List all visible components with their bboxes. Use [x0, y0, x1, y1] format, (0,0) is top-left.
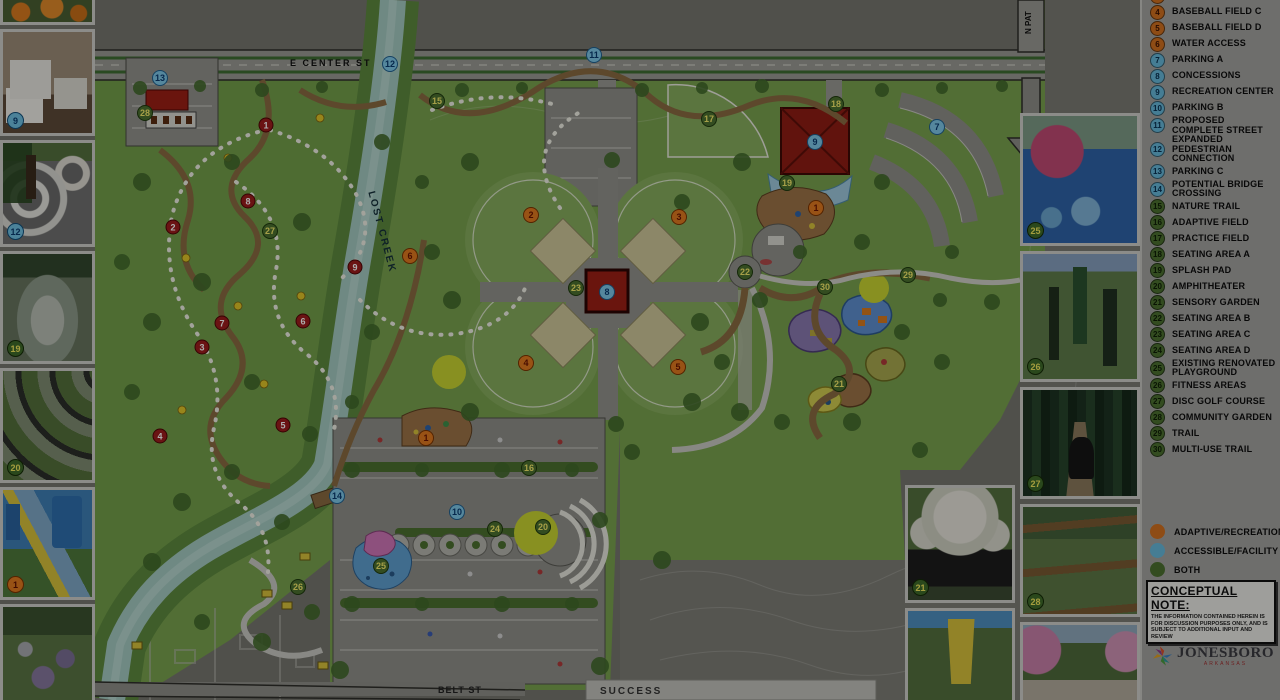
map-marker-29: 29 [900, 267, 916, 283]
legend-label-30: MULTI-USE TRAIL [1172, 445, 1252, 455]
photo-disc-golf: 27 [1020, 387, 1140, 499]
legend-item-4: 4BASEBALL FIELD C [1150, 4, 1278, 20]
conceptual-note-title: CONCEPTUAL NOTE: [1151, 584, 1271, 612]
photo-badge-28: 28 [1027, 593, 1044, 610]
photo-badge-21: 21 [912, 579, 929, 596]
map-marker-3: 3 [195, 340, 210, 355]
legend-item-21: 21SENSORY GARDEN [1150, 295, 1278, 311]
legend-label-24: SEATING AREA D [1172, 346, 1250, 356]
legend-item-9: 9RECREATION CENTER [1150, 84, 1278, 100]
map-marker-24: 24 [487, 521, 503, 537]
color-key-label: BOTH [1174, 565, 1200, 575]
legend-label-14: POTENTIAL BRIDGE CROSSING [1172, 180, 1276, 199]
legend-badge-8: 8 [1150, 69, 1165, 84]
legend-badge-12: 12 [1150, 142, 1165, 157]
legend-item-list: 3BASEBALL FIELD B4BASEBALL FIELD C5BASEB… [1150, 0, 1278, 458]
map-marker-7: 7 [929, 119, 945, 135]
legend-item-18: 18SEATING AREA A [1150, 247, 1278, 263]
map-marker-6: 6 [402, 248, 418, 264]
color-key-label: ACCESSIBLE/FACILITY [1174, 546, 1278, 556]
legend-badge-9: 9 [1150, 85, 1165, 100]
map-marker-6: 6 [296, 314, 311, 329]
map-marker-5: 5 [276, 418, 291, 433]
photo-badge-20: 20 [7, 459, 24, 476]
photo-accessible-fitness: 26 [1020, 251, 1140, 382]
legend-item-17: 17PRACTICE FIELD [1150, 231, 1278, 247]
legend-item-24: 24SEATING AREA D [1150, 343, 1278, 359]
legend-item-5: 5BASEBALL FIELD D [1150, 20, 1278, 36]
photo-badge-25: 25 [1027, 222, 1044, 239]
legend-badge-15: 15 [1150, 199, 1165, 214]
legend-item-28: 28COMMUNITY GARDEN [1150, 410, 1278, 426]
photo-adaptive-swing [905, 608, 1015, 700]
legend-item-25: 25EXISTING RENOVATED PLAYGROUND [1150, 359, 1278, 378]
legend-badge-27: 27 [1150, 394, 1165, 409]
map-marker-4: 4 [153, 429, 168, 444]
legend-item-11: 11PROPOSED COMPLETE STREET [1150, 116, 1278, 135]
map-marker-17: 17 [701, 111, 717, 127]
legend-badge-19: 19 [1150, 263, 1165, 278]
legend-panel: 3BASEBALL FIELD B4BASEBALL FIELD C5BASEB… [1140, 0, 1280, 700]
legend-label-21: SENSORY GARDEN [1172, 298, 1260, 308]
map-marker-27: 27 [262, 223, 278, 239]
map-marker-15: 15 [429, 93, 445, 109]
legend-label-16: ADAPTIVE FIELD [1172, 218, 1249, 228]
legend-badge-25: 25 [1150, 361, 1165, 376]
legend-item-12: 12EXPANDED PEDESTRIAN CONNECTION [1150, 135, 1278, 164]
legend-item-23: 23SEATING AREA C [1150, 327, 1278, 343]
photo-curvy-walkway: 12 [0, 140, 95, 247]
legend-label-19: SPLASH PAD [1172, 266, 1231, 276]
legend-label-5: BASEBALL FIELD D [1172, 23, 1262, 33]
photo-renovated-playground: 25 [1020, 113, 1140, 246]
legend-item-14: 14POTENTIAL BRIDGE CROSSING [1150, 180, 1278, 199]
legend-badge-18: 18 [1150, 247, 1165, 262]
map-marker-20: 20 [535, 519, 551, 535]
color-key-dot [1150, 524, 1165, 539]
photo-flower-garden [0, 604, 95, 700]
legend-badge-17: 17 [1150, 231, 1165, 246]
legend-badge-24: 24 [1150, 343, 1165, 358]
photo-badge-27: 27 [1027, 475, 1044, 492]
legend-badge-21: 21 [1150, 295, 1165, 310]
photo-amphitheater: 20 [0, 368, 95, 483]
legend-item-16: 16ADAPTIVE FIELD [1150, 215, 1278, 231]
legend-label-15: NATURE TRAIL [1172, 202, 1240, 212]
color-key-row: ADAPTIVE/RECREATIONAL [1150, 524, 1278, 539]
street-label-n-pat: N PAT [1024, 11, 1033, 34]
legend-item-27: 27DISC GOLF COURSE [1150, 394, 1278, 410]
conceptual-note: CONCEPTUAL NOTE: THE INFORMATION CONTAIN… [1146, 580, 1276, 644]
jonesboro-logo: JONESBORO ARKANSAS [1152, 645, 1274, 667]
photo-adult-changing-room: 9 [0, 29, 95, 136]
legend-badge-26: 26 [1150, 378, 1165, 393]
street-label-e-center-st: E CENTER ST [290, 58, 372, 68]
legend-item-15: 15NATURE TRAIL [1150, 199, 1278, 215]
photo-badge-26: 26 [1027, 358, 1044, 375]
photo-badge-9: 9 [7, 112, 24, 129]
legend-item-30: 30MULTI-USE TRAIL [1150, 442, 1278, 458]
conceptual-note-body: THE INFORMATION CONTAINED HEREIN IS FOR … [1151, 614, 1271, 640]
legend-item-19: 19SPLASH PAD [1150, 263, 1278, 279]
legend-label-10: PARKING B [1172, 103, 1224, 113]
legend-badge-5: 5 [1150, 21, 1165, 36]
map-marker-11: 11 [586, 47, 602, 63]
legend-label-18: SEATING AREA A [1172, 250, 1250, 260]
legend-label-22: SEATING AREA B [1172, 314, 1250, 324]
map-marker-23: 23 [568, 280, 584, 296]
color-key-dot [1150, 562, 1165, 577]
map-marker-8: 8 [599, 284, 615, 300]
street-label-success: SUCCESS [600, 686, 662, 697]
map-marker-2: 2 [523, 207, 539, 223]
legend-label-11: PROPOSED COMPLETE STREET [1172, 116, 1276, 135]
legend-badge-4: 4 [1150, 5, 1165, 20]
map-marker-2: 2 [166, 220, 181, 235]
map-marker-30: 30 [817, 279, 833, 295]
map-marker-9: 9 [807, 134, 823, 150]
street-label-belt-st: BELT ST [438, 685, 482, 695]
map-marker-1: 1 [418, 430, 434, 446]
legend-badge-14: 14 [1150, 182, 1165, 197]
legend-badge-16: 16 [1150, 215, 1165, 230]
photo-badge-1: 1 [7, 576, 24, 593]
photo-badge-19: 19 [7, 340, 24, 357]
legend-item-22: 22SEATING AREA B [1150, 311, 1278, 327]
map-marker-28: 28 [137, 105, 153, 121]
legend-item-6: 6WATER ACCESS [1150, 36, 1278, 52]
legend-label-8: CONCESSIONS [1172, 71, 1241, 81]
park-master-plan: E CENTER ST LOST CREEK BELT ST SUCCESS N… [0, 0, 1280, 700]
map-marker-19: 19 [779, 175, 795, 191]
legend-label-3: BASEBALL FIELD B [1172, 0, 1262, 1]
legend-label-26: FITNESS AREAS [1172, 381, 1246, 391]
map-marker-13: 13 [152, 70, 168, 86]
map-marker-8: 8 [241, 194, 256, 209]
legend-label-17: PRACTICE FIELD [1172, 234, 1249, 244]
legend-label-6: WATER ACCESS [1172, 39, 1246, 49]
map-marker-21: 21 [831, 376, 847, 392]
legend-badge-11: 11 [1150, 118, 1165, 133]
color-key-label: ADAPTIVE/RECREATIONAL [1174, 527, 1280, 537]
legend-badge-13: 13 [1150, 164, 1165, 179]
legend-badge-30: 30 [1150, 442, 1165, 457]
legend-label-9: RECREATION CENTER [1172, 87, 1274, 97]
legend-label-13: PARKING C [1172, 167, 1224, 177]
legend-badge-28: 28 [1150, 410, 1165, 425]
jonesboro-star-icon [1152, 645, 1173, 667]
legend-badge-10: 10 [1150, 101, 1165, 116]
legend-badge-7: 7 [1150, 53, 1165, 68]
map-marker-14: 14 [329, 488, 345, 504]
map-marker-1: 1 [808, 200, 824, 216]
color-key-row: ACCESSIBLE/FACILITY [1150, 543, 1278, 558]
legend-label-25: EXISTING RENOVATED PLAYGROUND [1172, 359, 1276, 378]
legend-label-28: COMMUNITY GARDEN [1172, 413, 1272, 423]
legend-item-20: 20AMPHITHEATER [1150, 279, 1278, 295]
map-marker-7: 7 [215, 316, 230, 331]
legend-item-13: 13PARKING C [1150, 164, 1278, 180]
legend-color-key: ADAPTIVE/RECREATIONALACCESSIBLE/FACILITY… [1150, 520, 1278, 581]
legend-badge-29: 29 [1150, 426, 1165, 441]
map-marker-4: 4 [518, 355, 534, 371]
photo-playground-pumpkins [0, 0, 95, 25]
map-marker-1: 1 [259, 118, 274, 133]
legend-badge-6: 6 [1150, 37, 1165, 52]
legend-badge-23: 23 [1150, 327, 1165, 342]
photo-blossom-trail [1020, 622, 1140, 700]
legend-item-10: 10PARKING B [1150, 100, 1278, 116]
legend-item-29: 29TRAIL [1150, 426, 1278, 442]
legend-label-7: PARKING A [1172, 55, 1223, 65]
map-marker-5: 5 [670, 359, 686, 375]
legend-badge-22: 22 [1150, 311, 1165, 326]
photo-badge-12: 12 [7, 223, 24, 240]
photo-accessible-playground-slide: 1 [0, 487, 95, 600]
legend-badge-3: 3 [1150, 0, 1165, 4]
map-marker-25: 25 [373, 558, 389, 574]
legend-label-12: EXPANDED PEDESTRIAN CONNECTION [1172, 135, 1276, 164]
color-key-row: BOTH [1150, 562, 1278, 577]
map-marker-18: 18 [828, 96, 844, 112]
map-marker-22: 22 [737, 264, 753, 280]
legend-label-27: DISC GOLF COURSE [1172, 397, 1265, 407]
photo-splash-fountain: 19 [0, 251, 95, 364]
legend-label-29: TRAIL [1172, 429, 1200, 439]
legend-label-4: BASEBALL FIELD C [1172, 7, 1262, 17]
map-marker-26: 26 [290, 579, 306, 595]
map-marker-12: 12 [382, 56, 398, 72]
photo-community-garden-beds: 28 [1020, 504, 1140, 617]
legend-item-7: 7PARKING A [1150, 52, 1278, 68]
map-marker-10: 10 [449, 504, 465, 520]
map-marker-16: 16 [521, 460, 537, 476]
legend-label-20: AMPHITHEATER [1172, 282, 1245, 292]
legend-item-8: 8CONCESSIONS [1150, 68, 1278, 84]
map-marker-3: 3 [671, 209, 687, 225]
logo-name: JONESBORO [1177, 645, 1274, 662]
photo-sensory-garden-bench: 21 [905, 485, 1015, 603]
map-marker-9: 9 [348, 260, 363, 275]
legend-badge-20: 20 [1150, 279, 1165, 294]
legend-item-26: 26FITNESS AREAS [1150, 378, 1278, 394]
color-key-dot [1150, 543, 1165, 558]
legend-label-23: SEATING AREA C [1172, 330, 1250, 340]
